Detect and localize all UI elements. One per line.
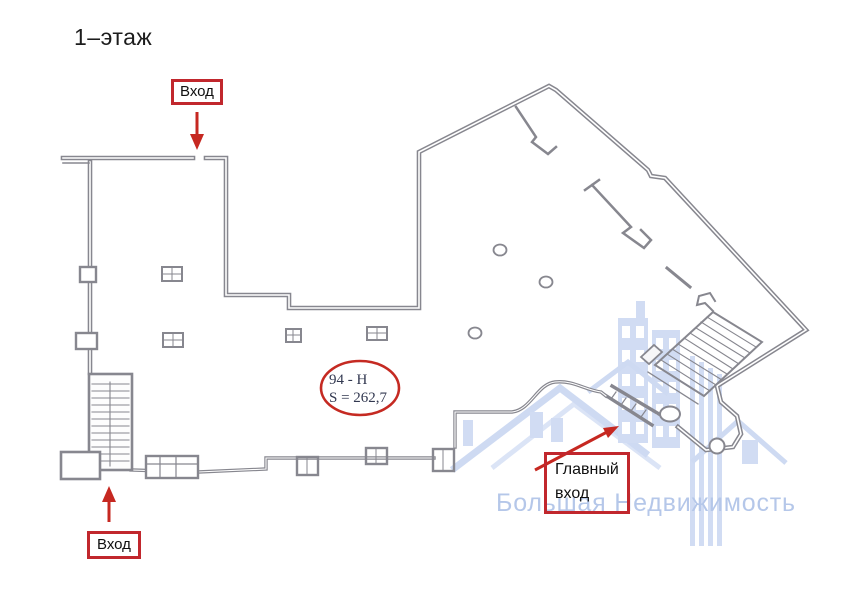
arrow-up-icon (102, 486, 116, 522)
arrow-down-icon (190, 112, 204, 150)
main-entrance-label: Главный вход (544, 452, 630, 514)
entrance-top-label: Вход (171, 79, 223, 105)
page-title: 1–этаж (74, 24, 152, 51)
stair-newel (697, 293, 715, 311)
room-area: S = 262,7 (329, 389, 387, 407)
watermark-text: Большая Недвижимость (496, 489, 796, 517)
column (297, 448, 454, 475)
floor-plan-drawing: Большая Недвижимость (0, 0, 868, 599)
partition-stub (667, 268, 690, 287)
floor-plan-page: Большая Недвижимость (0, 0, 868, 599)
partition-stub (516, 107, 556, 154)
left-wall-block (80, 267, 96, 282)
room-number: 94 - Н (329, 371, 387, 389)
round-column (469, 245, 553, 339)
entry-column (660, 407, 680, 422)
partition-stub (585, 180, 651, 248)
entry-column (710, 439, 725, 454)
bottom-structure (146, 456, 198, 478)
room-label: 94 - Н S = 262,7 (329, 371, 387, 408)
left-wall-block (76, 333, 97, 349)
left-vestibule (61, 452, 100, 479)
entrance-bottom-label: Вход (87, 531, 141, 559)
